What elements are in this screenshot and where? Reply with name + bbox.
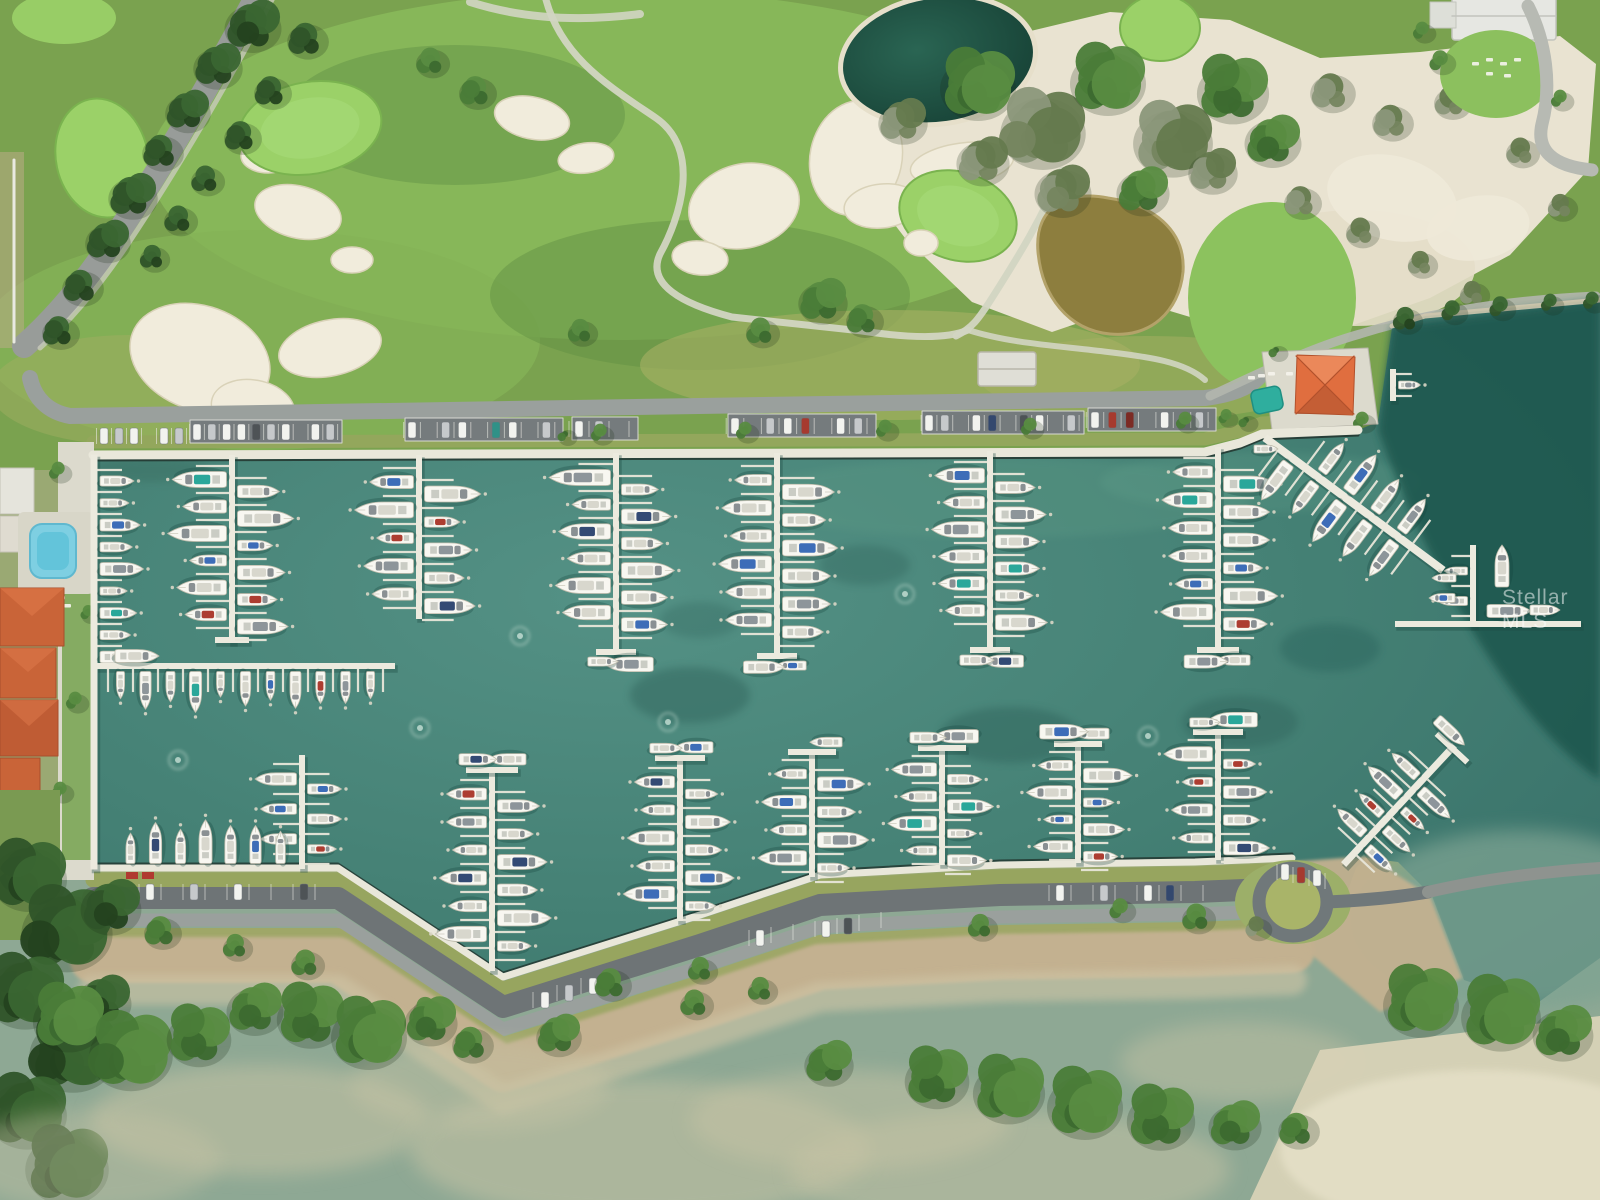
tree <box>1559 206 1570 217</box>
mooring-pile <box>925 528 928 531</box>
parked-cars-row <box>190 424 338 440</box>
car <box>766 418 774 434</box>
tree <box>1416 22 1429 35</box>
tree <box>693 1003 705 1015</box>
mooring-pile <box>1265 566 1268 569</box>
mooring-pile <box>868 782 871 785</box>
tree <box>239 1004 261 1026</box>
mooring-pile <box>119 702 122 705</box>
car <box>1091 412 1099 428</box>
tree <box>455 1031 475 1051</box>
tree <box>462 80 480 98</box>
mooring-pile <box>617 892 620 895</box>
mooring-pile <box>1452 819 1455 822</box>
tree <box>1221 409 1232 420</box>
tree <box>52 462 65 475</box>
mooring-pile <box>752 856 755 859</box>
mooring-pile <box>132 501 135 504</box>
mooring-pile <box>833 602 836 605</box>
car <box>223 424 231 440</box>
mooring-pile <box>1135 774 1138 777</box>
mooring-pile <box>288 571 291 574</box>
tree <box>1132 1084 1168 1120</box>
mooring-pile <box>140 611 143 614</box>
mooring-pile <box>358 564 361 567</box>
tree <box>429 61 441 73</box>
mooring-pile <box>1262 818 1265 821</box>
car <box>844 918 852 934</box>
mooring-pile <box>826 630 829 633</box>
mooring-pile <box>1156 498 1159 501</box>
tree <box>1047 186 1069 208</box>
car <box>509 422 517 438</box>
tree <box>65 274 85 294</box>
building-roof <box>0 468 34 514</box>
mooring-pile <box>294 711 297 714</box>
pool-lounger <box>1500 62 1507 66</box>
car <box>208 424 216 440</box>
tree <box>53 999 100 1046</box>
tree <box>20 920 59 959</box>
tree <box>557 433 565 441</box>
mooring-pile <box>129 827 132 830</box>
mooring-pile <box>1270 790 1273 793</box>
tree <box>181 90 209 118</box>
tree-cluster <box>88 1010 173 1091</box>
mooring-pile <box>133 633 136 636</box>
tree <box>416 1017 437 1038</box>
mooring-pile <box>1308 543 1311 546</box>
mooring-pile <box>549 584 552 587</box>
mooring-pile <box>885 768 888 771</box>
pool-lounger <box>1514 58 1521 62</box>
mooring-pile <box>674 515 677 518</box>
mooring-pile <box>872 838 875 841</box>
tree <box>962 64 1011 113</box>
tree-cluster <box>1127 1084 1195 1151</box>
tree <box>1471 293 1482 304</box>
mooring-pile <box>1172 836 1175 839</box>
tree <box>204 179 216 191</box>
mooring-pile <box>1020 791 1023 794</box>
mooring-pile <box>737 876 740 879</box>
car <box>458 422 466 438</box>
tree <box>1202 54 1240 92</box>
mooring-pile <box>1158 752 1161 755</box>
car <box>190 884 198 900</box>
mooring-pile <box>146 567 149 570</box>
car <box>1166 885 1174 901</box>
mooring-pile <box>894 795 897 798</box>
mooring-pile <box>446 848 449 851</box>
mooring-pile <box>1272 538 1275 541</box>
mooring-pile <box>280 598 283 601</box>
mooring-pile <box>534 944 537 947</box>
pool-lounger <box>1258 374 1265 378</box>
mooring-pile <box>177 505 180 508</box>
mooring-pile <box>1162 526 1165 529</box>
tree <box>1238 419 1246 427</box>
mooring-pile <box>729 478 732 481</box>
tree <box>1069 1083 1118 1132</box>
tree <box>1206 148 1236 178</box>
mooring-pile <box>344 706 347 709</box>
car <box>1161 412 1169 428</box>
tree <box>909 1045 943 1079</box>
car <box>1126 412 1134 428</box>
tree <box>849 308 867 326</box>
car <box>988 415 996 431</box>
mooring-pile <box>484 492 487 495</box>
tree <box>1268 349 1276 357</box>
tree <box>88 1043 124 1079</box>
car <box>193 424 201 440</box>
tree <box>237 21 259 43</box>
car <box>565 985 573 1001</box>
tree <box>896 98 926 128</box>
mooring-pile <box>1121 855 1124 858</box>
scene-shape <box>0 152 24 348</box>
mooring-pile <box>670 596 673 599</box>
car <box>801 418 809 434</box>
tree <box>979 926 990 937</box>
mooring-pile <box>1038 818 1041 821</box>
mooring-pile <box>841 546 844 549</box>
mooring-pile <box>833 574 836 577</box>
mooring-pile <box>724 848 727 851</box>
mooring-pile <box>279 825 282 828</box>
car <box>267 424 275 440</box>
mooring-pile <box>369 702 372 705</box>
mooring-pile <box>144 712 147 715</box>
tree <box>597 972 615 990</box>
tree <box>1544 294 1557 307</box>
mooring-pile <box>1049 513 1052 516</box>
mooring-pile <box>1412 853 1415 856</box>
pool-lounger <box>1248 376 1255 380</box>
mooring-pile <box>666 542 669 545</box>
tree <box>1314 78 1336 100</box>
tree-cluster <box>1070 42 1146 116</box>
mooring-pile <box>1176 780 1179 783</box>
tree <box>45 320 63 338</box>
tree-cluster <box>940 47 1016 121</box>
car <box>1108 412 1116 428</box>
mooring-pile <box>297 517 300 520</box>
mooring-pile <box>1272 846 1275 849</box>
car <box>146 884 154 900</box>
mooring-pile <box>552 530 555 533</box>
mooring-pile <box>154 816 157 819</box>
car <box>175 428 183 444</box>
mooring-pile <box>561 557 564 560</box>
car <box>1144 885 1152 901</box>
tree <box>290 27 310 47</box>
tree <box>69 692 82 705</box>
mooring-pile <box>550 860 553 863</box>
car <box>130 428 138 444</box>
tree <box>1519 151 1531 163</box>
tree <box>552 1014 580 1042</box>
mooring-pile <box>179 823 182 826</box>
car <box>541 992 549 1008</box>
tree <box>1433 50 1448 65</box>
mooring-pile <box>1042 540 1045 543</box>
car <box>542 422 550 438</box>
car <box>941 415 949 431</box>
mooring-pile <box>171 586 174 589</box>
mooring-pile <box>254 807 257 810</box>
mooring-pile <box>143 523 146 526</box>
pool-lounger <box>1486 58 1493 62</box>
car <box>925 415 933 431</box>
tree-cluster <box>1383 964 1459 1038</box>
aerial-photo: Stellar MLS <box>0 0 1600 1200</box>
mooring-pile <box>291 625 294 628</box>
mooring-pile <box>882 822 885 825</box>
mooring-pile <box>1169 582 1172 585</box>
mooring-pile <box>932 555 935 558</box>
tree <box>177 219 189 231</box>
car <box>784 418 792 434</box>
mooring-pile <box>1377 450 1380 453</box>
mooring-pile <box>716 506 719 509</box>
mooring-pile <box>979 832 982 835</box>
car <box>100 428 108 444</box>
mooring-pile <box>929 474 932 477</box>
car <box>115 428 123 444</box>
tree <box>976 136 1009 169</box>
tree <box>1287 190 1305 208</box>
mooring-pile <box>1426 494 1429 497</box>
mooring-pile <box>1036 594 1039 597</box>
mooring-pile <box>1050 621 1053 624</box>
mooring-pile <box>467 576 470 579</box>
car <box>408 422 416 438</box>
mooring-pile <box>1167 470 1170 473</box>
tree <box>227 125 245 143</box>
tree <box>1092 59 1141 108</box>
mooring-pile <box>542 804 545 807</box>
tree <box>145 139 165 159</box>
tree <box>1356 412 1369 425</box>
car <box>300 884 308 900</box>
tree <box>304 963 316 975</box>
mooring-pile <box>204 814 207 817</box>
tree <box>1179 412 1192 425</box>
mooring-pile <box>566 503 569 506</box>
mooring-pile <box>556 611 559 614</box>
mooring-pile <box>254 819 257 822</box>
mooring-pile <box>1281 594 1284 597</box>
car <box>252 424 260 440</box>
car <box>442 422 450 438</box>
tree-cluster <box>167 1003 232 1067</box>
mooring-pile <box>371 536 374 539</box>
mooring-pile <box>719 590 722 593</box>
tree <box>1554 90 1567 103</box>
car <box>972 415 980 431</box>
mooring-pile <box>429 932 432 935</box>
tree-cluster <box>905 1045 970 1109</box>
mooring-pile <box>540 888 543 891</box>
mooring-pile <box>1027 845 1030 848</box>
mooring-pile <box>712 562 715 565</box>
tree <box>594 424 607 437</box>
mooring-pile <box>1165 808 1168 811</box>
tree-cluster <box>1197 54 1269 125</box>
mooring-pile <box>937 501 940 504</box>
mooring-pile <box>768 772 771 775</box>
tree <box>151 257 162 268</box>
marina-aerial-svg <box>0 0 1600 1200</box>
tree-cluster <box>973 1054 1045 1125</box>
tree-cluster <box>331 996 407 1070</box>
car <box>1281 864 1289 880</box>
mooring-pile <box>348 508 351 511</box>
mooring-pile <box>184 559 187 562</box>
tree <box>1249 916 1264 931</box>
sand-bunker <box>331 247 373 273</box>
pool-lounger <box>1268 372 1275 376</box>
pool-lounger <box>64 604 71 608</box>
tree <box>1195 917 1207 929</box>
mooring-pile <box>543 476 546 479</box>
tree <box>759 989 770 1000</box>
car <box>492 422 500 438</box>
mooring-pile <box>1117 801 1120 804</box>
tree <box>1375 109 1395 129</box>
mooring-pile <box>433 876 436 879</box>
pool-lounger <box>1472 62 1479 66</box>
dock-box <box>142 872 154 879</box>
tree <box>1586 292 1599 305</box>
mooring-pile <box>194 715 197 718</box>
dock-box <box>126 872 138 879</box>
mooring-pile <box>276 544 279 547</box>
tree <box>171 1003 205 1037</box>
tree <box>1359 231 1371 243</box>
swimming-pool <box>1250 385 1284 415</box>
mooring-pile <box>130 589 133 592</box>
mooring-pile <box>475 548 478 551</box>
tree <box>699 969 710 980</box>
mooring-pile <box>442 904 445 907</box>
car <box>160 428 168 444</box>
tree <box>1024 418 1037 431</box>
mooring-pile <box>1257 502 1260 505</box>
scene-shape <box>630 667 750 723</box>
mooring-pile <box>724 534 727 537</box>
mooring-pile <box>670 623 673 626</box>
pool-lounger <box>1286 372 1293 376</box>
mooring-pile <box>985 778 988 781</box>
tree <box>579 331 590 342</box>
mooring-pile <box>764 828 767 831</box>
mooring-pile <box>249 777 252 780</box>
mooring-pile <box>1423 383 1426 386</box>
mooring-pile <box>1038 486 1041 489</box>
mooring-pile <box>837 490 840 493</box>
mooring-pile <box>677 569 680 572</box>
mooring-pile <box>1154 610 1157 613</box>
tree <box>739 422 752 435</box>
mooring-pile <box>719 618 722 621</box>
tree-cluster <box>999 87 1086 170</box>
mooring-pile <box>630 864 633 867</box>
mooring-pile <box>1363 762 1366 765</box>
mooring-pile <box>1272 510 1275 513</box>
tree <box>1493 296 1508 311</box>
mooring-pile <box>536 832 539 835</box>
mooring-pile <box>1042 567 1045 570</box>
building-wing <box>1430 2 1456 28</box>
tree <box>879 420 892 433</box>
mooring-pile <box>900 849 903 852</box>
mooring-pile <box>1032 764 1035 767</box>
mooring-pile <box>1354 789 1357 792</box>
mooring-pile <box>1339 558 1342 561</box>
tree <box>1257 136 1279 158</box>
mooring-pile <box>269 703 272 706</box>
mooring-pile <box>364 480 367 483</box>
mooring-pile <box>996 805 999 808</box>
car <box>237 424 245 440</box>
car <box>1297 867 1305 883</box>
mooring-pile <box>939 609 942 612</box>
mooring-pile <box>858 810 861 813</box>
car <box>282 424 290 440</box>
tree <box>257 80 275 98</box>
mooring-pile <box>1333 804 1336 807</box>
orange-roof-building <box>0 758 40 794</box>
car <box>1313 870 1321 886</box>
tree <box>94 902 118 926</box>
tree <box>816 278 846 308</box>
tree <box>1419 263 1430 274</box>
watermark: Stellar MLS <box>1502 586 1600 634</box>
tree <box>1484 992 1536 1044</box>
tree <box>1546 1028 1570 1052</box>
mooring-pile <box>621 836 624 839</box>
mooring-pile <box>829 518 832 521</box>
mooring-pile <box>1344 438 1347 441</box>
mooring-pile <box>554 916 557 919</box>
mooring-pile <box>319 706 322 709</box>
tree <box>211 43 241 73</box>
mooring-pile <box>478 604 481 607</box>
mooring-pile <box>229 819 232 822</box>
mooring-pile <box>169 705 172 708</box>
tree-cluster <box>1047 1066 1123 1140</box>
tree <box>126 173 156 203</box>
parking-lot <box>405 418 563 441</box>
tree <box>1404 319 1415 330</box>
car <box>756 930 764 946</box>
mooring-pile <box>634 808 637 811</box>
mooring-pile <box>852 866 855 869</box>
tree <box>1281 1117 1301 1137</box>
mooring-pile <box>219 700 222 703</box>
tree <box>1113 898 1128 913</box>
mooring-pile <box>339 847 342 850</box>
tree <box>1136 166 1169 199</box>
mooring-pile <box>244 709 247 712</box>
mooring-pile <box>733 820 736 823</box>
pool-lounger <box>1504 74 1511 78</box>
car <box>854 418 862 434</box>
tree <box>147 920 165 938</box>
